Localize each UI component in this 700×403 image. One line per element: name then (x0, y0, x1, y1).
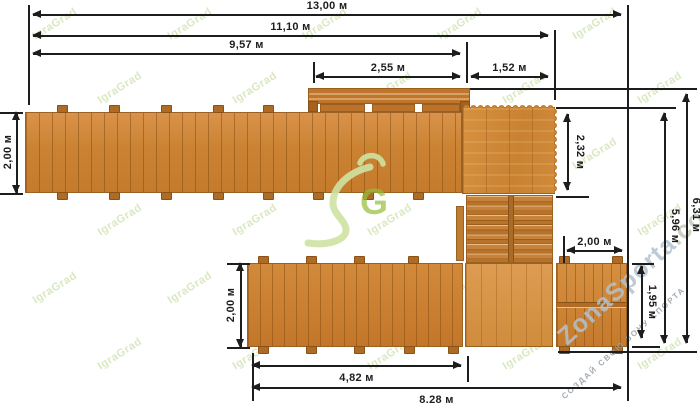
extension-line (28, 5, 30, 105)
watermark-tile: IgraGrad (166, 270, 215, 307)
arrowhead-icon (12, 185, 20, 194)
dimension-bottomleft-2-00 (240, 263, 242, 347)
stair-side-rail (456, 206, 464, 261)
watermark-tile: IgraGrad (231, 202, 280, 239)
staircase (466, 195, 553, 263)
deck-post (258, 256, 269, 264)
deck-post (306, 256, 317, 264)
walkway-post (109, 192, 120, 200)
watermark-tile: IgraGrad (96, 202, 145, 239)
dimension-9-57: 9,57 м (33, 53, 460, 55)
stair-landing (465, 263, 553, 347)
dimension-right-2-00: 2,00 м (567, 250, 622, 252)
dimension-13-00: 13,00 м (33, 14, 621, 16)
arrowhead-icon (563, 182, 571, 191)
watermark-tile: IgraGrad (231, 70, 280, 107)
walkway-post (109, 105, 120, 113)
arrowhead-icon (613, 383, 622, 391)
deck-post (306, 346, 317, 354)
arrowhead-icon (637, 330, 645, 339)
arrowhead-icon (12, 111, 20, 120)
bench-seat-slat (372, 104, 415, 112)
deck-post (354, 346, 365, 354)
dimension-label: 1,52 м (471, 62, 548, 74)
dimension-1-95 (641, 266, 643, 338)
log-edge-right (554, 108, 557, 193)
walkway-post (57, 105, 68, 113)
deck-post (612, 256, 623, 264)
arrowhead-icon (660, 112, 668, 121)
watermark-tile: IgraGrad (96, 336, 145, 373)
stair-center-stringer (508, 196, 514, 262)
deck-post (404, 346, 415, 354)
extension-line (467, 356, 469, 382)
extension-line (558, 351, 697, 353)
extension-line (556, 107, 676, 109)
walkway-post (161, 192, 172, 200)
lower-walkway (247, 263, 463, 347)
dimension-8-28: 8,28 м (252, 387, 621, 389)
arrowhead-icon (682, 93, 690, 102)
log-edge-top (463, 105, 554, 108)
extension-line (627, 5, 629, 401)
dimension-1-52: 1,52 м (471, 76, 548, 78)
arrowhead-icon (660, 335, 668, 344)
dimension-6-31 (686, 94, 688, 343)
dimension-2-55: 2,55 м (316, 76, 460, 78)
dimension-left-2-00 (16, 112, 18, 193)
logo-letter: G (360, 181, 388, 222)
dimension-label: 2,00 м (567, 236, 622, 248)
deck-post (448, 346, 459, 354)
walkway-post (263, 105, 274, 113)
deck-post (408, 256, 419, 264)
arrowhead-icon (236, 262, 244, 271)
walkway-post (213, 105, 224, 113)
bench-backrest (308, 88, 470, 104)
logo-lock-shackle-icon (360, 156, 383, 164)
dimension-label: 11,10 м (33, 21, 548, 33)
arrowhead-icon (251, 361, 260, 369)
deck-post (258, 346, 269, 354)
extension-line (470, 88, 697, 90)
arrowhead-icon (682, 335, 690, 344)
bench-seat-slat (422, 104, 460, 112)
dimension-4-82: 4,82 м (252, 365, 461, 367)
igragrad-logo: G (302, 150, 402, 250)
watermark-tile: IgraGrad (96, 70, 145, 107)
arrowhead-icon (453, 361, 462, 369)
extension-line (563, 236, 565, 263)
dimension-11-10: 11,10 м (33, 35, 548, 37)
arrowhead-icon (236, 339, 244, 348)
walkway-post (213, 192, 224, 200)
walkway-post (57, 192, 68, 200)
watermark-tile: IgraGrad (31, 270, 80, 307)
dimension-label: 8,28 м (252, 394, 621, 403)
dimension-label: 13,00 м (33, 0, 621, 12)
tower-platform (462, 107, 555, 194)
dimension-5-96 (664, 113, 666, 343)
extension-line (556, 196, 589, 198)
bench (308, 88, 470, 112)
walkway-post (161, 105, 172, 113)
bench-seat-slat (320, 104, 365, 112)
arrowhead-icon (251, 383, 260, 391)
dimension-label: 9,57 м (33, 39, 460, 51)
extension-line (632, 346, 660, 348)
deck-post (354, 256, 365, 264)
extension-line (466, 42, 468, 83)
arrowhead-icon (563, 113, 571, 122)
bench-leg (308, 101, 318, 112)
dimension-2-32 (567, 114, 569, 190)
dimension-label: 4,82 м (252, 372, 461, 384)
dimension-label: 2,55 м (316, 62, 460, 74)
walkway-post (413, 192, 424, 200)
plan-drawing: IgraGrad IgraGrad IgraGrad IgraGrad Igra… (0, 0, 700, 403)
arrowhead-icon (637, 265, 645, 274)
walkway-post (263, 192, 274, 200)
